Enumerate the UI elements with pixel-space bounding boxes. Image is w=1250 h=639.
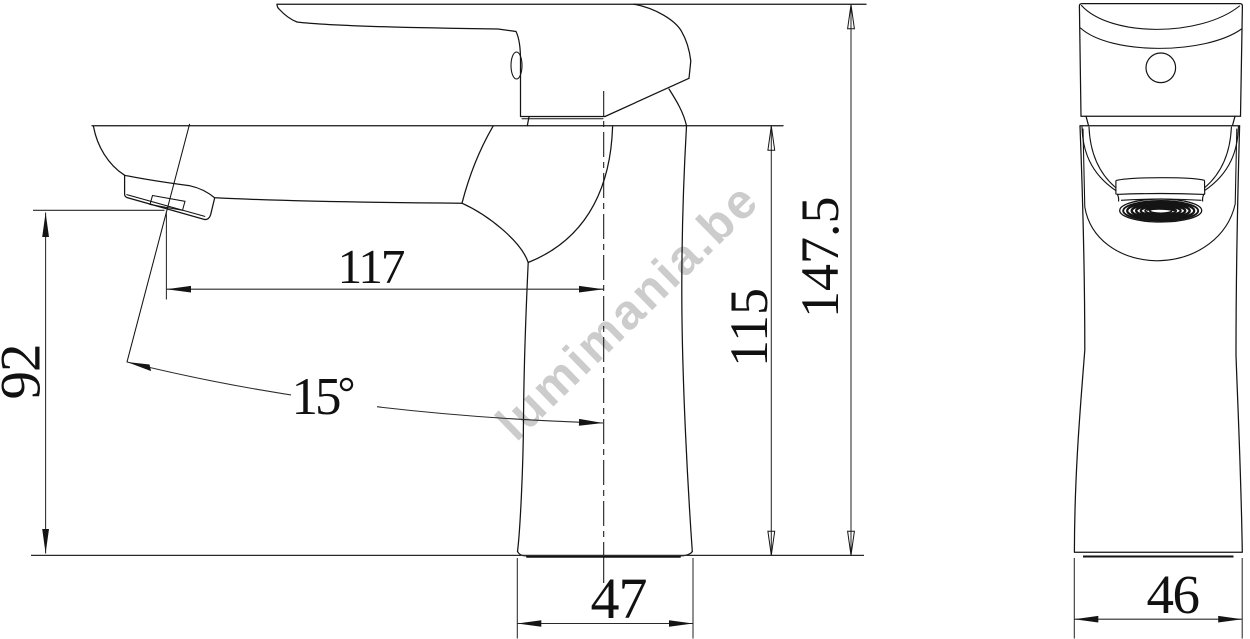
svg-text:147.5: 147.5 (790, 197, 850, 319)
svg-text:115: 115 (719, 288, 779, 367)
svg-text:46: 46 (1147, 564, 1199, 625)
svg-text:47: 47 (591, 566, 647, 631)
svg-text:92: 92 (0, 345, 53, 400)
svg-text:117: 117 (338, 239, 405, 294)
svg-text:15: 15 (292, 368, 341, 426)
